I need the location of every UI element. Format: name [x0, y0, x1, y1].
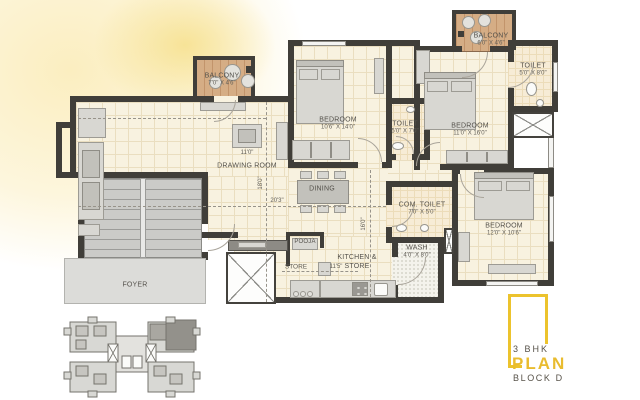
balcony-chair-icon	[478, 14, 491, 27]
room-name: DRAWING ROOM	[217, 161, 277, 170]
wall	[286, 232, 324, 236]
dimension-line	[370, 170, 371, 297]
bed-pillow	[321, 69, 340, 80]
label-store: STORE	[285, 264, 307, 271]
room-dim: 10'6" X 14'0"	[321, 125, 355, 133]
room-name: BEDROOM	[451, 122, 489, 131]
room-label-wash: WASH 4'0" X 8'0"	[403, 244, 430, 261]
dimension-line	[78, 206, 386, 207]
dining-chair-icon	[317, 171, 329, 179]
armchair-icon	[78, 108, 106, 138]
duct-shaft-small	[444, 228, 454, 254]
dining-chair-icon	[300, 171, 312, 179]
room-dim: 12'0" X 10'6"	[487, 231, 521, 239]
wall	[56, 122, 62, 178]
bed-pillow	[299, 69, 318, 80]
logo-line3: BLOCK D	[513, 373, 564, 383]
dim-drawing-width: 11'0"	[241, 150, 254, 156]
wc-icon	[526, 82, 537, 96]
wall	[386, 154, 396, 160]
key-plan	[62, 316, 202, 398]
wardrobe-divider	[310, 142, 312, 158]
washbasin-icon	[536, 99, 544, 107]
room-name: BALCONY	[205, 72, 240, 81]
room-label-balcony-top: BALCONY 6'0" X 4'6"	[474, 32, 509, 49]
room-dim: 5'0" X 8'0"	[519, 71, 546, 79]
room-label-bedroom2: BEDROOM 11'0" X 16'0"	[451, 122, 489, 139]
stove-icon	[352, 282, 368, 296]
balcony-wall	[512, 10, 516, 50]
balcony-wall	[193, 56, 197, 98]
wall	[70, 96, 76, 178]
room-name: TOILET	[520, 62, 546, 71]
wardrobe-icon	[458, 232, 470, 262]
wall	[56, 122, 72, 128]
wall	[288, 162, 358, 168]
room-name: POOJA	[294, 239, 315, 247]
dim-kitchen-length: 16'0"	[361, 217, 367, 230]
stair-railing	[140, 178, 146, 258]
sink-icon	[374, 283, 388, 296]
washbasin-icon	[420, 224, 429, 232]
floorplan-canvas: BALCONY 7'0" X 4'6" DRAWING ROOM BEDROOM…	[0, 0, 640, 400]
room-name: KITCHEN &	[337, 253, 376, 262]
planter-icon	[458, 31, 464, 37]
balcony-chair-icon	[462, 16, 475, 29]
wall	[392, 243, 398, 257]
room-name: FOYER	[122, 280, 147, 289]
bed-pillow	[427, 81, 448, 92]
dresser-icon	[374, 58, 384, 94]
sideboard-sink-icon	[238, 242, 266, 248]
wardrobe-divider	[466, 152, 468, 162]
logo-line2: PLAN	[512, 354, 566, 374]
side-table-icon	[78, 224, 100, 236]
balcony-wall	[452, 10, 456, 50]
room-label-balcony-left: BALCONY 7'0" X 4'6"	[205, 72, 240, 89]
balcony-chair-icon	[241, 74, 255, 88]
bed-pillow	[506, 181, 530, 191]
room-name: STORE	[344, 262, 369, 271]
window	[553, 62, 558, 92]
wall	[320, 232, 324, 248]
wall	[386, 181, 392, 205]
window	[549, 196, 554, 242]
dim-drawing-length: 18'0"	[258, 176, 264, 189]
tv-unit-icon	[276, 122, 288, 160]
dimension-line	[266, 102, 267, 302]
room-label-pooja: POOJA	[294, 239, 315, 247]
wardrobe-divider	[330, 142, 332, 158]
dining-chair-icon	[334, 171, 346, 179]
room-dim: 5'0" X 7'0"	[391, 129, 418, 137]
room-label-com-toilet: COM. TOILET 7'0" X 5'0"	[399, 201, 446, 218]
wall	[386, 181, 452, 187]
coffee-table-top	[238, 129, 256, 143]
room-dim: 4'0" X 8'0"	[403, 253, 430, 261]
planter-icon	[246, 66, 253, 73]
wall	[452, 168, 458, 286]
room-dim: 6'0" X 4'6"	[477, 41, 504, 49]
room-dim: 11'0" X 16'0"	[453, 131, 486, 139]
dim-hall-width: 20'3"	[270, 198, 283, 204]
room-name: BEDROOM	[485, 222, 523, 231]
room-name: TOILET	[392, 120, 418, 129]
duct-shaft	[512, 112, 554, 138]
balcony-wall	[193, 56, 255, 60]
cylinder-icon	[300, 291, 306, 297]
room-name: WASH	[406, 244, 428, 253]
logo-line1: 3 BHK	[513, 344, 549, 354]
dimension-line	[78, 118, 266, 119]
lift-shaft	[226, 252, 276, 304]
wardrobe-icon	[292, 140, 350, 160]
room-label-drawing-room: DRAWING ROOM	[217, 161, 277, 170]
window	[486, 281, 538, 286]
wardrobe-divider	[486, 152, 488, 162]
room-name: DINING	[309, 184, 335, 193]
room-label-toilet-mid: TOILET 5'0" X 7'0"	[391, 120, 418, 137]
sofa-cushion	[82, 150, 100, 178]
cylinder-icon	[293, 291, 299, 297]
room-label-bedroom3: BEDROOM 12'0" X 10'6"	[485, 222, 523, 239]
room-label-toilet-top: TOILET 5'0" X 8'0"	[519, 62, 546, 79]
dimension-line	[282, 271, 358, 272]
window	[302, 41, 346, 46]
room-label-kitchen-store: KITCHEN & STORE	[337, 253, 376, 271]
room-name: BALCONY	[474, 32, 509, 41]
room-name: COM. TOILET	[399, 201, 446, 210]
room-label-bedroom1: BEDROOM 10'6" X 14'0"	[319, 116, 357, 133]
room-label-dining: DINING	[309, 184, 335, 193]
room-dim: 7'0" X 4'6"	[208, 81, 235, 89]
bed-pillow	[451, 81, 472, 92]
wardrobe-icon	[446, 150, 508, 164]
wall	[202, 178, 208, 224]
dim-store-width: 11'5"	[330, 264, 343, 270]
washbasin-icon	[406, 106, 415, 113]
room-dim: 7'0" X 5'0"	[408, 210, 435, 218]
cylinder-icon	[307, 291, 313, 297]
room-label-foyer: FOYER	[122, 280, 147, 289]
room-name: BEDROOM	[319, 116, 357, 125]
bed-headboard	[296, 60, 344, 67]
dresser-icon	[488, 264, 536, 274]
